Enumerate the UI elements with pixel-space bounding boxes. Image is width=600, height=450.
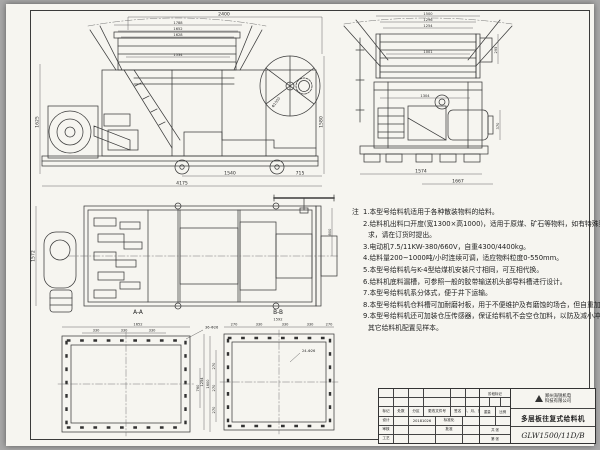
dim-s1: 1788 xyxy=(173,21,183,25)
dim-b-seg5: 270 xyxy=(326,322,334,326)
dim-end-b2: 1667 xyxy=(452,179,464,185)
plan-gate-handwheel xyxy=(274,195,337,306)
dim-b-seg1: 270 xyxy=(231,322,239,326)
weight-label: 重量 xyxy=(480,407,496,415)
rev-header-signature: 签名 xyxy=(451,407,466,415)
rev-header-docno: 更改文件号 xyxy=(424,407,451,415)
dim-left-height: 1625 xyxy=(35,116,41,128)
company-logo-icon xyxy=(535,395,543,402)
feeder-base-frame xyxy=(42,156,318,174)
title-block: 标记 处数 分区 更改文件号 签名 年、月、日 设计 20181026 标准化 … xyxy=(378,388,596,444)
gearbox-and-motor xyxy=(408,95,493,140)
dim-mid: 1304 xyxy=(420,94,430,98)
dim-end-b1: 1574 xyxy=(415,169,427,175)
plan-motor xyxy=(44,232,76,312)
company-name-line2: 科技有限公司 xyxy=(545,399,571,404)
approve-label: 批准 xyxy=(436,426,463,434)
dim-disc-diameter: Φ1500 xyxy=(271,96,282,109)
drive-unit xyxy=(48,106,138,158)
scanned-engineering-drawing: 2400 1788 1652 1628 1534 1625 1580 Φ1500… xyxy=(0,0,600,450)
hopper xyxy=(88,18,266,70)
dim-b-holes: 24-Φ26 xyxy=(302,349,316,353)
dim-b-seg4: 330 xyxy=(307,322,315,326)
dim-a-holes: 36-Φ26 xyxy=(205,326,219,330)
dim-a-outer-height: 1600 xyxy=(206,379,210,389)
rev-header-date: 年、月、日 xyxy=(466,407,480,415)
process-label: 工艺 xyxy=(379,435,394,443)
plan-body xyxy=(68,203,338,309)
notes-marker: 注 xyxy=(352,207,359,219)
total-sheets-label: 共 张 xyxy=(480,426,510,434)
dim-b-left3: 270 xyxy=(212,406,216,414)
feeder-body xyxy=(102,70,316,156)
title-block-id-area: 郑州海锐机电 科技有限公司 多层板往复式给料机 GLW1500/11D/B xyxy=(511,389,595,443)
note-line: 7.本型号给料机系分体式，便于井下运输。 xyxy=(352,288,600,300)
notes-block: 注 1.本型号给料机适用于各种散装物料的给料。 2.给料机出料口开度(宽1300… xyxy=(352,207,600,335)
dim-motor: 370 xyxy=(496,122,500,130)
feed-chute xyxy=(124,70,180,148)
dim-a-width: 1652 xyxy=(133,322,142,326)
dim-s3: 1628 xyxy=(173,33,183,37)
title-block-revision-area: 标记 处数 分区 更改文件号 签名 年、月、日 设计 20181026 标准化 … xyxy=(379,389,480,443)
section-b-dimensions xyxy=(204,327,334,430)
side-elevation-view: 2400 1788 1652 1628 1534 1625 1580 Φ1500… xyxy=(34,10,330,196)
end-view: 1500 1296 1254 1001 295 370 1304 1574 16… xyxy=(330,10,526,196)
end-dimension-lines xyxy=(360,16,500,184)
note-line: 求，请在订货时提出。 xyxy=(352,230,600,242)
drawing-number: GLW1500/11D/B xyxy=(511,427,595,443)
dim-s4: 1534 xyxy=(173,53,183,57)
section-b-label: B-B xyxy=(273,310,283,316)
dim-flange: 295 xyxy=(494,47,498,54)
section-a-dimensions xyxy=(62,327,210,432)
dim-plan-right: 800 xyxy=(328,228,332,236)
dim-plan-width: 1572 xyxy=(31,250,37,262)
sheet-number-label: 第 张 xyxy=(480,435,510,443)
note-line: 1.本型号给料机适用于各种散装物料的给料。 xyxy=(363,208,499,216)
company-cell: 郑州海锐机电 科技有限公司 xyxy=(511,389,595,409)
note-line: 6.给料机底料漏槽，可参照一般的胶带输送机头部导料槽进行设计。 xyxy=(352,277,600,289)
section-views: A-A 1652 330 330 330 36-Φ26 760 1600 xyxy=(38,306,342,446)
scale-label: 比例 xyxy=(496,407,511,415)
plan-view: 1572 800 xyxy=(28,194,344,316)
stage-mark-label: 阶段标记 xyxy=(480,389,510,397)
dim-a-seg3: 330 xyxy=(149,329,157,333)
dim-b-seg2: 330 xyxy=(256,322,264,326)
dim-b-width: 1592 xyxy=(273,317,282,321)
crank-disc xyxy=(260,56,320,116)
dim-b2: 715 xyxy=(296,171,305,177)
dim-right-height: 1580 xyxy=(319,116,325,128)
rev-header-zone: 分区 xyxy=(409,407,424,415)
product-name: 多层板往复式给料机 xyxy=(511,409,595,427)
dim-total-length: 4175 xyxy=(176,181,188,187)
drawing-sheet: 2400 1788 1652 1628 1534 1625 1580 Φ1500… xyxy=(6,4,594,446)
dim-a-seg2: 330 xyxy=(121,329,129,333)
dim-b-seg3: 330 xyxy=(282,322,290,326)
section-b-flange xyxy=(220,330,338,434)
note-line: 2.给料机出料口开度(宽1300×高1000)，适用于原煤、矿石等物料，如有特殊… xyxy=(352,219,600,231)
dim-top: 2400 xyxy=(218,12,230,18)
end-body xyxy=(356,38,482,148)
dim-t2: 1296 xyxy=(423,18,433,22)
check-label: 审核 xyxy=(379,426,394,434)
dim-b-left2: 270 xyxy=(212,384,216,392)
design-date: 20181026 xyxy=(409,417,436,425)
dim-t1: 1500 xyxy=(423,12,433,16)
note-line: 3.电动机7.5/11KW-380/660V，自重4300/4400kg。 xyxy=(352,242,600,254)
dim-b-left-total: 1254 xyxy=(200,377,204,387)
note-line: 5.本型号给料机与K-4型给煤机安装尺寸相同，可互相代换。 xyxy=(352,265,600,277)
dim-t3: 1254 xyxy=(423,24,433,28)
title-block-stage-area: 阶段标记 重量 比例 共 张 第 张 xyxy=(480,389,511,443)
standardization-label: 标准化 xyxy=(436,417,463,425)
section-a-label: A-A xyxy=(133,310,143,316)
note-line: 其它给料机配置见样本。 xyxy=(352,323,600,335)
end-base xyxy=(360,146,488,162)
plan-drive-compartment xyxy=(94,218,142,298)
dim-b-left1: 270 xyxy=(212,362,216,370)
dim-inner: 1001 xyxy=(423,50,432,54)
note-line: 8.本型号给料机仓料槽可加耐磨衬板，用于不便维护及有磨蚀的场合，但自重加大。 xyxy=(352,300,600,312)
dim-b1: 1540 xyxy=(224,171,236,177)
note-line: 4.给料量200~1000吨/小时连续可调，适应物料粒度0-550mm。 xyxy=(352,253,600,265)
design-label: 设计 xyxy=(379,417,394,425)
company-name-line1: 郑州海锐机电 xyxy=(545,394,571,399)
dim-a-seg1: 330 xyxy=(93,329,101,333)
section-a-flange xyxy=(58,332,194,436)
rev-header-mark: 标记 xyxy=(379,407,394,415)
note-line: 9.本型号给料机还可加装仓压传感器，保证给料机不会空仓加料，以防及减小冲击。 xyxy=(352,311,600,323)
rev-header-count: 处数 xyxy=(394,407,409,415)
dim-s2: 1652 xyxy=(173,27,182,31)
